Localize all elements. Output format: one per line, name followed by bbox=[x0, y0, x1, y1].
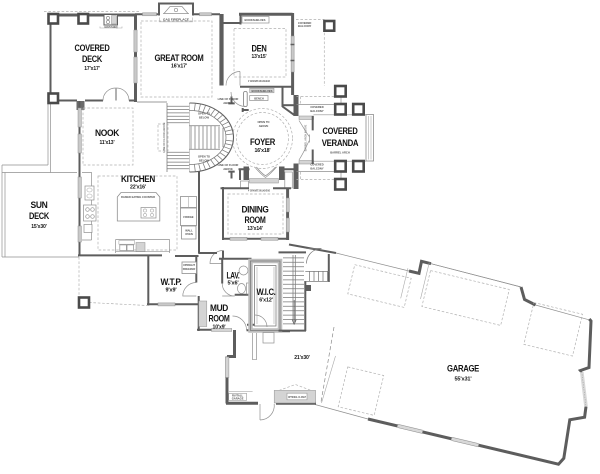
svg-text:BOOKSHELVES: BOOKSHELVES bbox=[252, 89, 273, 93]
svg-text:W.T.P.: W.T.P. bbox=[161, 277, 182, 287]
svg-text:FREEZER: FREEZER bbox=[183, 267, 196, 271]
svg-text:13'x15': 13'x15' bbox=[252, 54, 267, 60]
svg-text:DINING: DINING bbox=[242, 205, 269, 215]
svg-text:KITCHEN: KITCHEN bbox=[121, 174, 155, 184]
svg-text:LAV.: LAV. bbox=[227, 271, 240, 281]
svg-text:BELOW: BELOW bbox=[199, 116, 209, 120]
svg-text:LINE OF FLOOR: LINE OF FLOOR bbox=[218, 163, 239, 167]
svg-text:4' GRANITE BULKHEAD: 4' GRANITE BULKHEAD bbox=[248, 189, 270, 193]
svg-text:ABOVE: ABOVE bbox=[259, 124, 269, 128]
svg-text:COVERED: COVERED bbox=[75, 43, 110, 53]
svg-text:DEN: DEN bbox=[252, 44, 267, 54]
svg-text:ROOM: ROOM bbox=[245, 215, 266, 225]
svg-text:ABOVE: ABOVE bbox=[223, 167, 233, 171]
svg-text:COVERED: COVERED bbox=[310, 163, 323, 167]
svg-text:COVERED: COVERED bbox=[323, 126, 358, 136]
svg-text:21'x30': 21'x30' bbox=[294, 355, 310, 361]
svg-text:BOOKSHELVES: BOOKSHELVES bbox=[245, 18, 266, 22]
svg-text:BARREL ARCH ABOVE: BARREL ARCH ABOVE bbox=[305, 124, 308, 151]
svg-text:6'x12': 6'x12' bbox=[259, 298, 273, 304]
svg-text:SUN: SUN bbox=[31, 200, 48, 210]
svg-text:BALCONY: BALCONY bbox=[310, 167, 323, 171]
svg-text:UPRIGHT: UPRIGHT bbox=[183, 263, 195, 267]
svg-text:55'x31': 55'x31' bbox=[455, 377, 472, 383]
svg-text:5'x6': 5'x6' bbox=[228, 281, 239, 287]
svg-text:13'x14': 13'x14' bbox=[247, 226, 263, 232]
svg-text:BALCONY: BALCONY bbox=[298, 24, 311, 28]
svg-text:W.I.C.: W.I.C. bbox=[257, 287, 276, 297]
svg-text:LINE OF FLOOR: LINE OF FLOOR bbox=[218, 97, 239, 101]
svg-text:15'x30': 15'x30' bbox=[31, 224, 47, 230]
svg-text:BARREL ARCH: BARREL ARCH bbox=[330, 151, 350, 155]
svg-text:OPTIONAL CLOSET: OPTIONAL CLOSET bbox=[288, 395, 306, 399]
svg-text:GREAT ROOM: GREAT ROOM bbox=[155, 53, 204, 63]
svg-text:GAS FIREPLACE: GAS FIREPLACE bbox=[163, 18, 189, 22]
svg-text:FOYER: FOYER bbox=[250, 137, 276, 147]
svg-text:VERANDA: VERANDA bbox=[322, 138, 359, 148]
svg-text:OPEN TO: OPEN TO bbox=[257, 120, 269, 124]
svg-text:GARAGE: GARAGE bbox=[232, 396, 244, 400]
svg-text:NOOK: NOOK bbox=[95, 128, 120, 138]
svg-text:4' GRANITE BULKHEAD: 4' GRANITE BULKHEAD bbox=[248, 79, 270, 83]
svg-text:BALCONY: BALCONY bbox=[310, 109, 323, 113]
svg-text:LINE OF FLOOR ABOVE: LINE OF FLOOR ABOVE bbox=[162, 122, 166, 152]
svg-text:ROOM: ROOM bbox=[209, 314, 230, 324]
svg-text:OPEN TO: OPEN TO bbox=[198, 112, 210, 116]
svg-text:16'x17': 16'x17' bbox=[171, 64, 187, 70]
svg-text:COVERED: COVERED bbox=[310, 105, 323, 109]
svg-text:DECK: DECK bbox=[82, 54, 103, 64]
svg-text:DECK: DECK bbox=[29, 211, 50, 221]
svg-text:MUD: MUD bbox=[210, 303, 228, 313]
svg-text:RAISED EATING COUNTER: RAISED EATING COUNTER bbox=[121, 195, 155, 199]
svg-text:BUILT-IN BBQ: BUILT-IN BBQ bbox=[105, 25, 118, 29]
svg-text:GARAGE: GARAGE bbox=[447, 364, 479, 374]
svg-text:ABOVE: ABOVE bbox=[223, 101, 233, 105]
svg-text:17'x17': 17'x17' bbox=[84, 66, 100, 72]
svg-text:10'x9': 10'x9' bbox=[213, 325, 226, 331]
svg-text:22'x16': 22'x16' bbox=[130, 185, 146, 191]
svg-text:9'x9': 9'x9' bbox=[166, 288, 177, 294]
svg-text:BELOW: BELOW bbox=[199, 159, 209, 163]
svg-text:11'x13': 11'x13' bbox=[100, 140, 115, 146]
svg-text:BENCH: BENCH bbox=[254, 96, 264, 100]
svg-text:OVEN: OVEN bbox=[185, 232, 193, 236]
svg-text:OPEN TO: OPEN TO bbox=[198, 155, 210, 159]
svg-text:16'x18': 16'x18' bbox=[255, 148, 271, 154]
svg-text:WALL: WALL bbox=[185, 229, 193, 233]
svg-text:FRIDGE: FRIDGE bbox=[183, 215, 193, 219]
